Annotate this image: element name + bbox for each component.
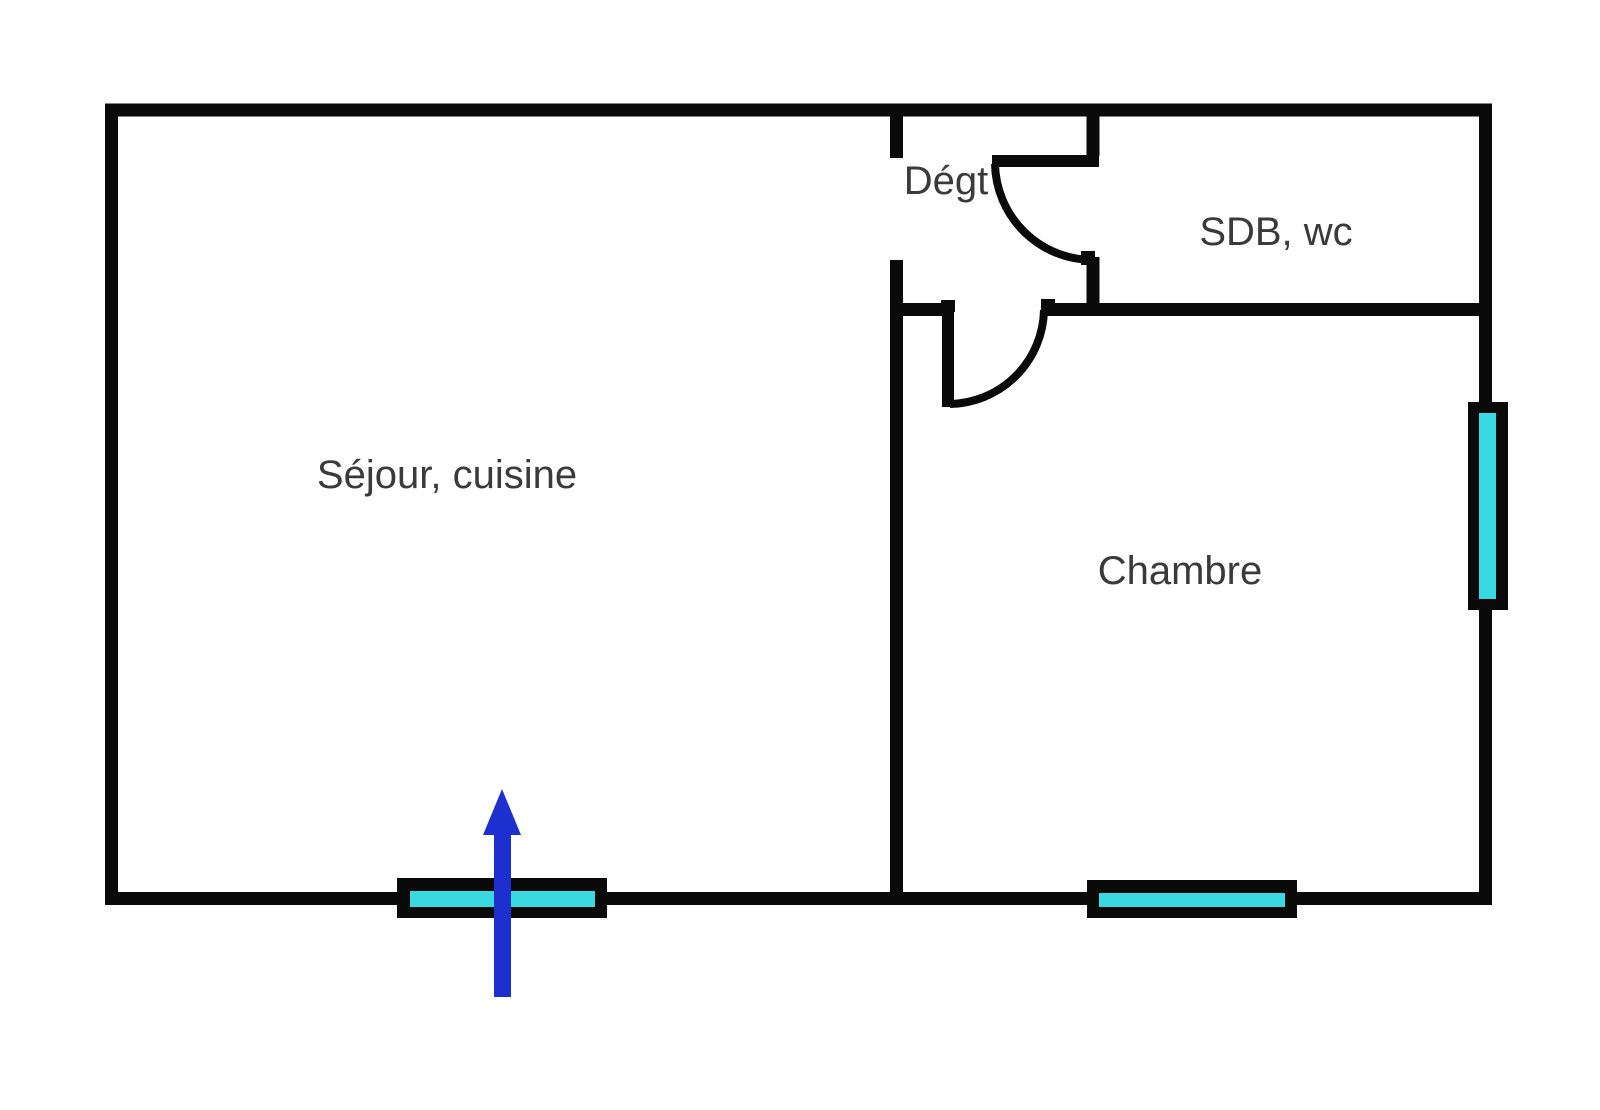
room-label-chambre: Chambre	[1098, 549, 1263, 593]
room-label-sdb: SDB, wc	[1199, 210, 1352, 254]
chambre-door-jamb-right	[1041, 299, 1055, 311]
sdb-door-swing-arc	[995, 164, 1093, 260]
sdb-door-jamb	[1081, 251, 1095, 265]
window-glass	[1099, 893, 1285, 907]
chambre-door-jamb-left	[941, 300, 955, 312]
window-glass	[1479, 413, 1496, 599]
room-label-sejour: Séjour, cuisine	[317, 453, 577, 497]
window-chambre-south	[1087, 880, 1297, 918]
chambre-door-swing-arc	[950, 310, 1044, 404]
window-chambre-east	[1468, 402, 1508, 610]
room-label-degagement: Dégt	[904, 159, 989, 203]
floor-plan-canvas: Séjour, cuisine Dégt SDB, wc Chambre	[0, 0, 1600, 1110]
